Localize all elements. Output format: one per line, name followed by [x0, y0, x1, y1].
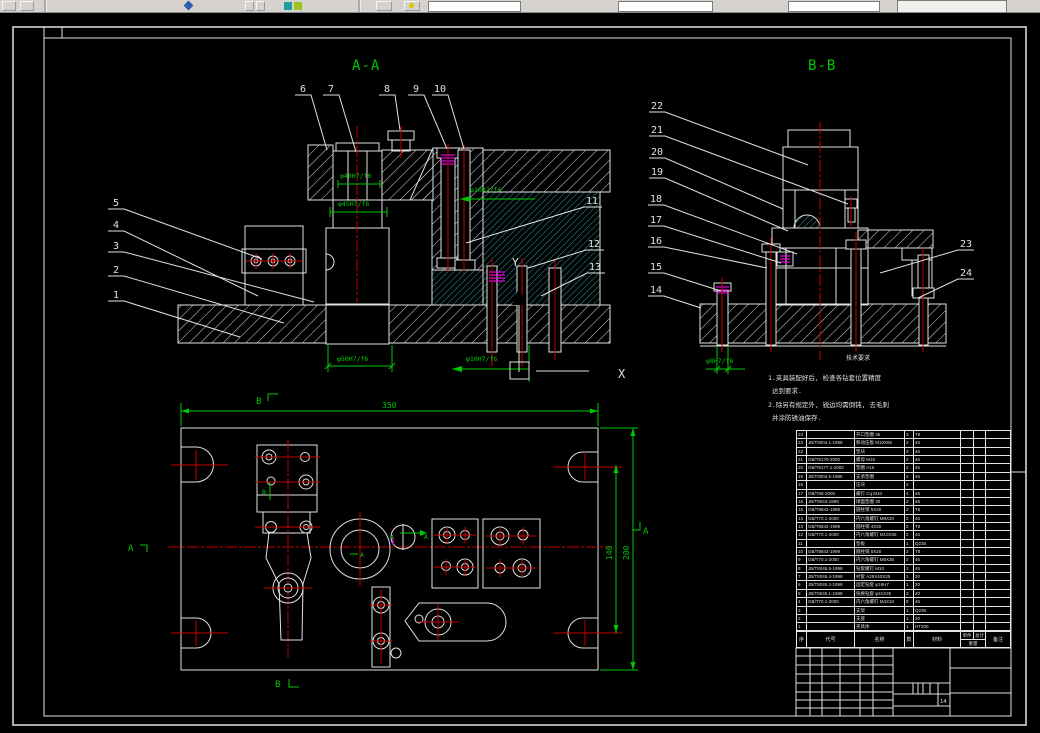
bom-cell-weight-unit — [961, 456, 974, 463]
bom-cell-note — [986, 556, 1010, 563]
bom-header-weight-label: 重量 — [961, 640, 985, 647]
bom-cell-weight-unit — [961, 565, 974, 572]
bom-cell-no: 20 — [797, 464, 807, 471]
toolbar-button-print[interactable] — [2, 1, 16, 11]
bom-row: 12 GB/T70.1-2000 内六角螺钉 M10X35 2 45 — [797, 531, 1010, 539]
toolbar-green-icon[interactable] — [294, 2, 302, 10]
bom-cell-weight-unit — [961, 615, 974, 622]
bom-cell-no: 2 — [797, 615, 807, 622]
bom-cell-note — [986, 615, 1010, 622]
bom-cell-name: 圆柱销 5X20 — [855, 548, 905, 555]
svg-text:6: 6 — [300, 84, 306, 95]
section-b-bottom-label: B — [275, 680, 280, 690]
bom-cell-name: 支座 — [855, 615, 905, 622]
bom-cell-weight-total — [974, 515, 986, 522]
bom-cell-weight-total — [974, 540, 986, 547]
bom-cell-weight-total — [974, 556, 986, 563]
svg-text:φ10H7/f6: φ10H7/f6 — [470, 186, 501, 194]
bom-cell-note — [986, 481, 1010, 488]
bom-cell-qty: 1 — [905, 540, 914, 547]
bom-cell-qty: 1 — [905, 565, 914, 572]
bom-cell-material: 45 — [914, 456, 961, 463]
svg-text:12: 12 — [588, 239, 600, 250]
bom-cell-code: GB/T8842-1999 — [807, 523, 855, 530]
bom-cell-code: JB/T8045.4-1999 — [807, 573, 855, 580]
bom-cell-weight-total — [974, 523, 986, 530]
section-view-a-a: A-A — [108, 58, 610, 382]
section-a-mark: A — [390, 533, 394, 541]
bom-cell-note — [986, 607, 1010, 614]
bom-row: 11 垫板 1 Q235 — [797, 540, 1010, 548]
svg-text:φ10H7/f6: φ10H7/f6 — [466, 355, 497, 363]
bom-cell-material: T8 — [914, 548, 961, 555]
bom-cell-code: GB/T70.1-2000 — [807, 531, 855, 538]
bom-cell-weight-total — [974, 590, 986, 597]
bom-cell-name: 内六角螺钉 M8X20 — [855, 515, 905, 522]
bom-cell-material: 45 — [914, 565, 961, 572]
bom-cell-name: 内六角螺钉 M4X10 — [855, 598, 905, 605]
svg-text:140: 140 — [605, 545, 614, 560]
bom-cell-no: 4 — [797, 598, 807, 605]
dim-aa-bush-top: φ40H7/f6 — [338, 172, 380, 188]
bom-cell-qty: 2 — [905, 556, 914, 563]
bom-cell-code — [807, 607, 855, 614]
bom-cell-code — [807, 481, 855, 488]
bom-cell-name: 压块 — [855, 481, 905, 488]
dim-plan-140: 140 — [605, 465, 619, 633]
bom-row: 15 GB/T8842-1999 圆柱销 5X30 2 T8 — [797, 506, 1010, 514]
bom-cell-material: 45 — [914, 498, 961, 505]
toolbar-layer-combo[interactable] — [428, 1, 521, 12]
bom-cell-name: 圆柱销 4X20 — [855, 523, 905, 530]
bom-cell-material: 45 — [914, 490, 961, 497]
bom-cell-note — [986, 565, 1010, 572]
bom-cell-weight-total — [974, 607, 986, 614]
bom-cell-no: 15 — [797, 506, 807, 513]
bom-cell-qty: 2 — [905, 481, 914, 488]
bom-header-weight-group: 单件 总计 重量 — [961, 632, 986, 647]
bom-cell-material: 45 — [914, 448, 961, 455]
bom-cell-weight-total — [974, 581, 986, 588]
bom-header-no: 序号 — [797, 632, 807, 647]
bom-cell-note — [986, 540, 1010, 547]
bom-cell-code: GB/T6177.1-2000 — [807, 464, 855, 471]
bom-cell-code: GB/T8842-1999 — [807, 506, 855, 513]
svg-text:φ40H7/f6: φ40H7/f6 — [340, 172, 371, 180]
bom-cell-name: 支承垫圈 — [855, 473, 905, 480]
bom-cell-material: T8 — [914, 506, 961, 513]
bom-cell-weight-unit — [961, 556, 974, 563]
title-block: 14 — [796, 648, 1011, 716]
bom-header-weight-total: 总计 — [974, 632, 985, 639]
bom-cell-weight-total — [974, 431, 986, 438]
bom-cell-material: T8 — [914, 523, 961, 530]
svg-text:1: 1 — [113, 290, 119, 301]
bom-cell-no: 11 — [797, 540, 807, 547]
svg-text:15: 15 — [650, 262, 662, 273]
bom-cell-code: JB/T8045.2-1999 — [807, 581, 855, 588]
svg-text:φ8H7/f6: φ8H7/f6 — [706, 357, 733, 365]
bom-cell-no: 24 — [797, 431, 807, 438]
svg-text:φ50H7/f6: φ50H7/f6 — [337, 355, 368, 363]
svg-text:13: 13 — [589, 262, 601, 273]
bom-cell-note — [986, 431, 1010, 438]
bom-cell-note — [986, 490, 1010, 497]
svg-text:7: 7 — [328, 84, 334, 95]
bom-cell-weight-unit — [961, 431, 974, 438]
bom-cell-weight-total — [974, 598, 986, 605]
toolbar-style-combo[interactable] — [897, 0, 1007, 12]
bom-row: 22 垫块 3 45 — [797, 448, 1010, 456]
bom-row: 7 JB/T8045.4-1999 衬套 A25X40X25 1 20 — [797, 573, 1010, 581]
toolbar-yellow-dot-icon — [409, 3, 414, 8]
bom-cell-code: JB/T8045.1-1999 — [807, 590, 855, 597]
bom-cell-no: 19 — [797, 473, 807, 480]
note-line-4: 并涂防锈油保存. — [772, 413, 821, 422]
x-axis-label: X — [618, 367, 626, 381]
section-b-mark: B — [262, 488, 266, 496]
svg-text:16: 16 — [650, 236, 662, 247]
bom-cell-name: 衬套 A25X40X25 — [855, 573, 905, 580]
toolbar-button-b[interactable] — [256, 1, 265, 11]
bom-cell-name: 螺母 M16 — [855, 456, 905, 463]
bom-cell-name: 钻套螺钉 M10 — [855, 565, 905, 572]
svg-text:8: 8 — [384, 84, 390, 95]
bom-cell-weight-total — [974, 573, 986, 580]
svg-text:22: 22 — [651, 101, 663, 112]
bom-cell-note — [986, 464, 1010, 471]
bom-cell-weight-unit — [961, 448, 974, 455]
bom-row: 16 JB/T8044-1999 球面垫圈 30 2 45 — [797, 498, 1010, 506]
bom-cell-name: 垫圈 A16 — [855, 464, 905, 471]
bom-cell-code: GB/T70.1-2000 — [807, 515, 855, 522]
bom-cell-name: 内六角螺钉 M6X35 — [855, 556, 905, 563]
bom-cell-weight-unit — [961, 573, 974, 580]
callouts-bb-left: 22 21 20 19 18 17 16 15 14 — [648, 101, 848, 308]
bom-cell-qty: 2 — [905, 548, 914, 555]
bom-cell-material: 45 — [914, 556, 961, 563]
plan-view: B A A A — [128, 394, 649, 690]
bom-cell-weight-total — [974, 456, 986, 463]
bom-cell-material: Q235 — [914, 540, 961, 547]
bom-cell-name: 内六角螺钉 M10X35 — [855, 531, 905, 538]
bom-cell-no: 14 — [797, 515, 807, 522]
toolbar-button-a[interactable] — [245, 1, 254, 11]
bom-cell-no: 10 — [797, 548, 807, 555]
bom-cell-weight-total — [974, 565, 986, 572]
bom-row: 9 GB/T70.1-2000 内六角螺钉 M6X35 2 45 — [797, 556, 1010, 564]
bom-cell-material: 20 — [914, 590, 961, 597]
note-line-3: 2.除另有规定外, 锐边均需倒钝, 去毛刺 — [768, 400, 889, 409]
bom-cell-qty: 2 — [905, 515, 914, 522]
bom-cell-note — [986, 590, 1010, 597]
bom-cell-weight-unit — [961, 531, 974, 538]
bom-cell-qty: 2 — [905, 464, 914, 471]
top-toolbar — [0, 0, 1040, 13]
bom-cell-name: 圆柱销 5X30 — [855, 506, 905, 513]
bom-cell-weight-unit — [961, 473, 974, 480]
bom-cell-qty: 2 — [905, 456, 914, 463]
toolbar-color-combo[interactable] — [618, 1, 713, 12]
svg-text:17: 17 — [650, 215, 662, 226]
bom-cell-code: JB/T8004.1-1999 — [807, 439, 855, 446]
bom-cell-weight-total — [974, 481, 986, 488]
bom-cell-weight-unit — [961, 607, 974, 614]
bom-cell-weight-unit — [961, 506, 974, 513]
bom-cell-qty: 3 — [905, 431, 914, 438]
bom-cell-material: 45 — [914, 439, 961, 446]
bom-cell-material: T8 — [914, 431, 961, 438]
bom-cell-weight-total — [974, 506, 986, 513]
bom-cell-weight-unit — [961, 490, 974, 497]
bom-header-material: 材料 — [914, 632, 961, 647]
dim-aa-bush: φ45H7/f6 — [330, 200, 387, 217]
bom-row: 2 支座 1 20 — [797, 615, 1010, 623]
bom-cell-note — [986, 506, 1010, 513]
bom-cell-no: 17 — [797, 490, 807, 497]
bom-cell-material: 45 — [914, 464, 961, 471]
bom-cell-no: 9 — [797, 556, 807, 563]
bom-cell-weight-unit — [961, 581, 974, 588]
bom-cell-qty: 9 — [905, 598, 914, 605]
bom-cell-weight-unit — [961, 439, 974, 446]
bom-cell-weight-total — [974, 548, 986, 555]
svg-text:11: 11 — [586, 196, 598, 207]
bom-cell-code — [807, 615, 855, 622]
bom-cell-material: 20 — [914, 581, 961, 588]
bom-cell-code: JB/T8044-1999 — [807, 498, 855, 505]
toolbar-linetype-combo[interactable] — [788, 1, 880, 12]
svg-text:10: 10 — [434, 84, 446, 95]
bom-cell-name: 垫板 — [855, 540, 905, 547]
bom-cell-no: 23 — [797, 439, 807, 446]
section-a-left-label: A — [128, 544, 134, 554]
bom-cell-weight-unit — [961, 598, 974, 605]
bom-cell-weight-unit — [961, 498, 974, 505]
bom-cell-no: 18 — [797, 481, 807, 488]
bom-row: 21 GB/T6170-2000 螺母 M16 2 45 — [797, 456, 1010, 464]
note-line-2: 达到要求. — [772, 386, 802, 395]
bom-cell-qty: 2 — [905, 439, 914, 446]
bom-cell-qty: 4 — [905, 490, 914, 497]
bom-cell-code: JB/T8004.5-1986 — [807, 473, 855, 480]
bom-cell-no: 7 — [797, 573, 807, 580]
bom-cell-weight-unit — [961, 481, 974, 488]
svg-text:20: 20 — [651, 147, 663, 158]
bom-cell-material: 45 — [914, 473, 961, 480]
bom-cell-weight-unit — [961, 515, 974, 522]
bom-row: 18 压块 2 — [797, 481, 1010, 489]
bom-cell-weight-unit — [961, 523, 974, 530]
bom-row: 14 GB/T70.1-2000 内六角螺钉 M8X20 2 45 — [797, 515, 1010, 523]
bom-cell-note — [986, 498, 1010, 505]
bom-cell-weight-total — [974, 464, 986, 471]
bom-cell-no: 21 — [797, 456, 807, 463]
bom-cell-note — [986, 523, 1010, 530]
y-axis-label: Y — [512, 256, 519, 269]
bom-cell-qty: 1 — [905, 615, 914, 622]
bom-cell-no: 3 — [797, 607, 807, 614]
bom-cell-qty: 1 — [905, 607, 914, 614]
sheet-number: 14 — [940, 699, 947, 705]
bom-row: 24 开口垫圈 35 3 T8 — [797, 431, 1010, 439]
bom-row: 6 JB/T8045.2-1999 固定钻套 φ18H7 1 20 — [797, 581, 1010, 589]
svg-text:φ45H7/f6: φ45H7/f6 — [338, 200, 369, 208]
bom-cell-name: 球面垫圈 30 — [855, 498, 905, 505]
bom-cell-material — [914, 481, 961, 488]
note-line-1: 1.夹具装配好后, 检查各钻套位置精度 — [768, 373, 882, 382]
bom-cell-qty: 3 — [905, 590, 914, 597]
bom-cell-name: 固定钻套 φ18H7 — [855, 581, 905, 588]
svg-text:2: 2 — [113, 265, 119, 276]
bom-row: 17 GB/T68-2000 螺钉 Cq M10 4 45 — [797, 490, 1010, 498]
bom-cell-material: 45 — [914, 598, 961, 605]
cad-application-window: A-A — [0, 0, 1040, 733]
bom-cell-note — [986, 439, 1010, 446]
svg-text:5: 5 — [113, 198, 119, 209]
bom-cell-no: 6 — [797, 581, 807, 588]
bom-cell-code — [807, 540, 855, 547]
bom-row: 19 JB/T8004.5-1986 支承垫圈 2 45 — [797, 473, 1010, 481]
svg-text:4: 4 — [113, 220, 119, 231]
bom-cell-code — [807, 431, 855, 438]
bom-cell-note — [986, 598, 1010, 605]
bom-row: 10 GB/T8842-1999 圆柱销 5X20 2 T8 — [797, 548, 1010, 556]
callouts-aa-top: 6 7 8 9 10 — [295, 84, 464, 152]
svg-text:14: 14 — [650, 285, 662, 296]
bom-cell-name: 移动压板 M10X65 — [855, 439, 905, 446]
section-b-top-label: B — [256, 397, 261, 407]
toolbar-separator — [358, 0, 361, 12]
bom-header-note: 备注 — [986, 632, 1010, 647]
bom-row: 4 GB/T70.1-2000 内六角螺钉 M4X10 9 45 — [797, 598, 1010, 606]
svg-text:3: 3 — [113, 241, 119, 252]
bom-cell-no: 5 — [797, 590, 807, 597]
bom-cell-code: GB/T70.1-2000 — [807, 556, 855, 563]
toolbar-diamond-icon[interactable] — [184, 1, 194, 11]
bom-cell-weight-total — [974, 531, 986, 538]
bom-cell-name: 快换钻套 φ21X35 — [855, 590, 905, 597]
bom-header-weight-unit: 单件 — [961, 632, 974, 639]
bom-cell-note — [986, 581, 1010, 588]
bom-cell-weight-unit — [961, 590, 974, 597]
section-view-b-b: B-B — [648, 58, 974, 422]
bom-cell-weight-unit — [961, 464, 974, 471]
bom-cell-material: 20 — [914, 615, 961, 622]
bom-cell-weight-unit — [961, 548, 974, 555]
bom-cell-code — [807, 448, 855, 455]
bom-cell-weight-total — [974, 490, 986, 497]
dim-aa-base: φ50H7/f6 — [325, 345, 395, 372]
bom-cell-qty: 2 — [905, 506, 914, 513]
bom-cell-qty: 2 — [905, 523, 914, 530]
svg-text:200: 200 — [622, 545, 631, 560]
bom-row: 20 GB/T6177.1-2000 垫圈 A16 2 45 — [797, 464, 1010, 472]
bom-header-qty: 数量 — [905, 632, 914, 647]
bom-cell-note — [986, 531, 1010, 538]
bom-cell-material: Q235 — [914, 607, 961, 614]
bom-cell-name: 螺钉 Cq M10 — [855, 490, 905, 497]
dim-bb-pin: φ8H7/f6 — [706, 346, 745, 374]
bom-cell-no: 12 — [797, 531, 807, 538]
bom-row: 3 支架 1 Q235 — [797, 607, 1010, 615]
section-a-title: A-A — [352, 58, 380, 74]
bom-row: 23 JB/T8004.1-1999 移动压板 M10X65 2 45 — [797, 439, 1010, 447]
section-a-mark: A — [424, 533, 428, 541]
bom-cell-material: 45 — [914, 531, 961, 538]
bom-cell-code: JB/T8045.5-1999 — [807, 565, 855, 572]
svg-text:21: 21 — [651, 125, 663, 136]
svg-text:24: 24 — [960, 268, 972, 279]
bom-cell-no: 8 — [797, 565, 807, 572]
bom-cell-no: 16 — [797, 498, 807, 505]
bom-cell-qty: 2 — [905, 531, 914, 538]
bom-row: 8 JB/T8045.5-1999 钻套螺钉 M10 1 45 — [797, 565, 1010, 573]
bom-header-name: 名称 — [855, 632, 905, 647]
svg-text:350: 350 — [382, 401, 397, 410]
bom-cell-note — [986, 448, 1010, 455]
svg-text:18: 18 — [650, 194, 662, 205]
toolbar-separator — [44, 0, 47, 12]
bom-cell-weight-total — [974, 448, 986, 455]
bom-cell-code: GB/T8842-1999 — [807, 548, 855, 555]
bom-cell-name: 开口垫圈 35 — [855, 431, 905, 438]
dim-plan-350: 350 — [181, 401, 598, 426]
bom-cell-code: GB/T6170-2000 — [807, 456, 855, 463]
bom-cell-note — [986, 573, 1010, 580]
section-a-mark: A — [360, 551, 364, 559]
bom-cell-code: GB/T68-2000 — [807, 490, 855, 497]
toolbar-button-c[interactable] — [376, 1, 392, 11]
toolbar-teal-icon[interactable] — [284, 2, 292, 10]
toolbar-button-preview[interactable] — [20, 1, 34, 11]
bom-header: 序号 代号 名称 数量 材料 单件 总计 重量 备注 — [796, 631, 1011, 648]
bom-cell-name: 支架 — [855, 607, 905, 614]
thread-symbol — [780, 256, 790, 262]
bom-cell-qty: 2 — [905, 498, 914, 505]
bom-cell-note — [986, 548, 1010, 555]
svg-text:23: 23 — [960, 239, 972, 250]
bom-cell-material: 45 — [914, 515, 961, 522]
bom-row: 5 JB/T8045.1-1999 快换钻套 φ21X35 3 20 — [797, 590, 1010, 598]
bom-header-code: 代号 — [807, 632, 855, 647]
bom-cell-note — [986, 515, 1010, 522]
bom-cell-qty: 3 — [905, 448, 914, 455]
bom-table: 24 开口垫圈 35 3 T8 23 JB/T8004.1-1999 移动压板 … — [796, 430, 1011, 631]
bom-cell-weight-unit — [961, 540, 974, 547]
bom-cell-weight-total — [974, 439, 986, 446]
bom-cell-qty: 2 — [905, 473, 914, 480]
bom-cell-note — [986, 456, 1010, 463]
section-a-right-label: A — [643, 527, 649, 537]
bom-cell-no: 13 — [797, 523, 807, 530]
svg-text:19: 19 — [651, 167, 663, 178]
notes-caption: 技术要求 — [846, 354, 870, 362]
bom-cell-qty: 1 — [905, 581, 914, 588]
bom-row: 13 GB/T8842-1999 圆柱销 4X20 2 T8 — [797, 523, 1010, 531]
x-axis-arrow-icon — [589, 366, 603, 376]
svg-text:9: 9 — [413, 84, 419, 95]
bom-cell-name: 垫块 — [855, 448, 905, 455]
bom-cell-material: 20 — [914, 573, 961, 580]
bom-cell-weight-total — [974, 473, 986, 480]
bom-cell-no: 22 — [797, 448, 807, 455]
section-b-title: B-B — [808, 58, 836, 74]
bom-cell-code: GB/T70.1-2000 — [807, 598, 855, 605]
bom-cell-weight-total — [974, 498, 986, 505]
bom-cell-note — [986, 473, 1010, 480]
bom-cell-qty: 1 — [905, 573, 914, 580]
